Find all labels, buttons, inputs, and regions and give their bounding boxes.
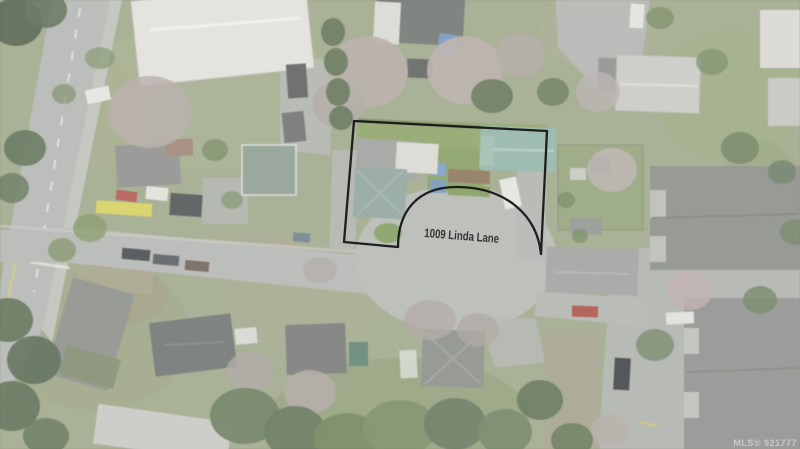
aerial-scene: 1009 Linda Lane MLS® 921777 [0, 0, 800, 449]
mls-watermark: MLS® 921777 [733, 438, 797, 448]
screenshot-root: 1009 Linda Lane MLS® 921777 [0, 0, 800, 449]
